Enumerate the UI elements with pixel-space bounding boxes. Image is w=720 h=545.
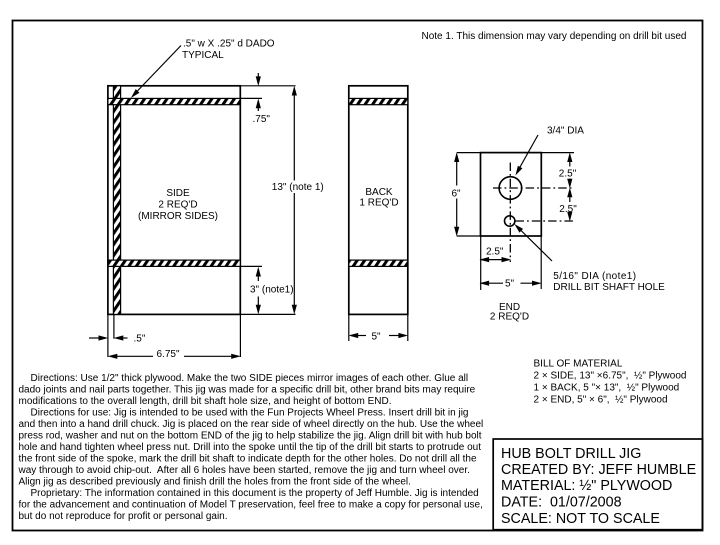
svg-text:1 REQ'D: 1 REQ'D <box>359 198 398 209</box>
svg-text:2.5": 2.5" <box>559 169 577 180</box>
svg-text:hole and hand tighten wheel pr: hole and hand tighten wheel press nut. D… <box>19 442 482 453</box>
svg-text:DRILL BIT SHAFT HOLE: DRILL BIT SHAFT HOLE <box>553 282 665 293</box>
svg-text:5/16" DIA (note1): 5/16" DIA (note1) <box>553 271 636 282</box>
svg-text:.5": .5" <box>134 334 146 345</box>
svg-text:Directions: Use 1/2" thick ply: Directions: Use 1/2" thick plywood. Make… <box>31 373 469 384</box>
svg-text:5": 5" <box>505 279 515 290</box>
svg-text:Note 1. This dimension may var: Note 1. This dimension may vary dependin… <box>422 31 687 42</box>
svg-text:3/4" DIA: 3/4" DIA <box>547 126 584 137</box>
svg-text:.75": .75" <box>253 114 271 125</box>
svg-text:.5" w X .25" d DADO: .5" w X .25" d DADO <box>183 39 275 50</box>
svg-text:Align jig as described previou: Align jig as described previously and fi… <box>19 477 411 488</box>
svg-text:2 REQ'D: 2 REQ'D <box>158 200 197 211</box>
svg-text:press rod, washer and nut on t: press rod, washer and nut on the bottom … <box>19 431 482 442</box>
svg-text:MATERIAL: ½" PLYWOOD: MATERIAL: ½" PLYWOOD <box>501 478 672 494</box>
svg-text:2 × SIDE, 13" ×6.75", ½" Plyw: 2 × SIDE, 13" ×6.75", ½" Plywood <box>534 370 687 381</box>
svg-text:HUB BOLT DRILL JIG: HUB BOLT DRILL JIG <box>501 446 641 462</box>
svg-text:13" (note 1): 13" (note 1) <box>272 182 324 193</box>
svg-text:5": 5" <box>372 332 382 343</box>
svg-text:2 REQ'D: 2 REQ'D <box>490 312 529 323</box>
svg-text:CREATED BY: JEFF HUMBLE: CREATED BY: JEFF HUMBLE <box>501 462 696 478</box>
svg-text:BILL OF MATERIAL: BILL OF MATERIAL <box>534 359 623 370</box>
svg-text:dado joints and nail parts tog: dado joints and nail parts together. Thi… <box>19 385 476 396</box>
svg-text:way through to avoid chip-out.: way through to avoid chip-out. After all… <box>18 465 470 476</box>
svg-text:SCALE: NOT TO SCALE: SCALE: NOT TO SCALE <box>501 511 660 527</box>
svg-text:(MIRROR SIDES): (MIRROR SIDES) <box>138 211 218 222</box>
svg-text:6": 6" <box>452 188 462 199</box>
svg-text:for the advancement and contin: for the advancement and continuation of … <box>19 500 483 511</box>
svg-text:and then into a hand drill chu: and then into a hand drill chuck. Jig is… <box>19 419 484 430</box>
svg-text:1 × BACK, 5 "× 13", ½" Plywoo: 1 × BACK, 5 "× 13", ½" Plywood <box>534 382 680 393</box>
svg-text:3" (note1): 3" (note1) <box>250 285 294 296</box>
svg-text:the front side of the spoke, m: the front side of the spoke, mark the dr… <box>19 454 477 465</box>
svg-text:SIDE: SIDE <box>166 188 190 199</box>
svg-text:modifications to the overall l: modifications to the overall length, dri… <box>19 396 392 407</box>
svg-text:6.75": 6.75" <box>157 349 180 360</box>
svg-text:2.5": 2.5" <box>486 247 504 258</box>
svg-text:2 × END, 5" × 6", ½" Plywood: 2 × END, 5" × 6", ½" Plywood <box>534 394 668 405</box>
svg-text:BACK: BACK <box>365 187 393 198</box>
svg-text:Directions for use: Jig is int: Directions for use: Jig is intended to b… <box>31 408 469 419</box>
svg-text:TYPICAL: TYPICAL <box>182 50 224 61</box>
svg-text:DATE: 01/07/2008: DATE: 01/07/2008 <box>501 495 622 511</box>
svg-text:Proprietary: The information c: Proprietary: The information contained i… <box>31 488 479 499</box>
svg-text:2.5": 2.5" <box>559 204 577 215</box>
svg-text:but do not reproduce for profi: but do not reproduce for profit or perso… <box>19 511 228 522</box>
